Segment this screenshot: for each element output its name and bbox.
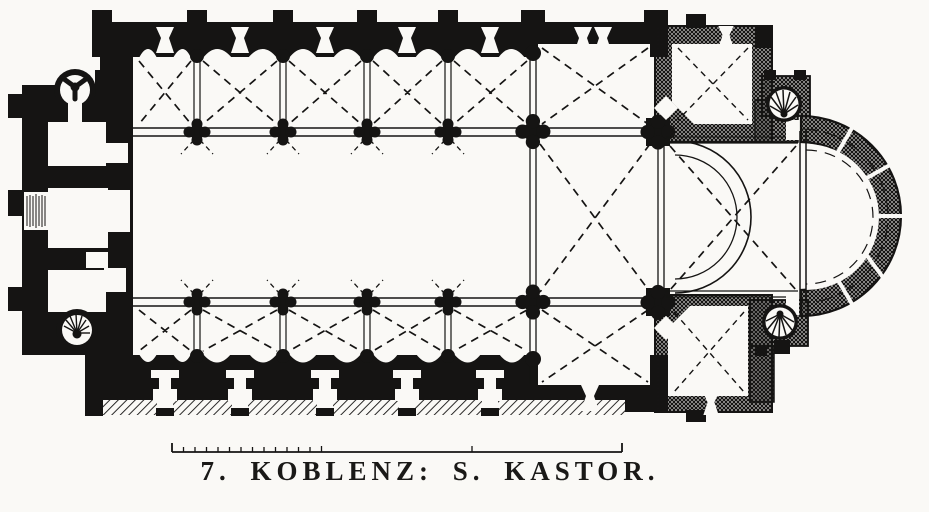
- floor-plan-drawing: [0, 0, 929, 512]
- south-aisle-vaults: [139, 310, 527, 351]
- apse-arch-outer: [675, 141, 751, 293]
- southeast-stair-turret: [762, 304, 798, 340]
- apse-arch-inner: [675, 155, 737, 279]
- choir-bay: [666, 137, 798, 297]
- arcade-quatrefoil-piers: [184, 119, 462, 316]
- crossing: [515, 45, 675, 384]
- nave-arcades: [133, 49, 668, 363]
- aisle-transverse-arches: [194, 57, 451, 353]
- north-apse-passage: [786, 120, 799, 140]
- northeast-stair-turret: [766, 86, 802, 122]
- north-aisle-vaults: [139, 61, 527, 124]
- nave-vault-springers: [181, 140, 464, 294]
- scale-bar: [172, 443, 622, 452]
- north-transept-vault: [542, 48, 648, 124]
- west-entrance-steps: [24, 192, 48, 230]
- apse: [800, 116, 903, 316]
- figure-plate: 7. KOBLENZ: S. KASTOR.: [0, 0, 929, 512]
- figure-caption: 7. KOBLENZ: S. KASTOR.: [150, 456, 710, 487]
- wall-responds: [190, 49, 455, 363]
